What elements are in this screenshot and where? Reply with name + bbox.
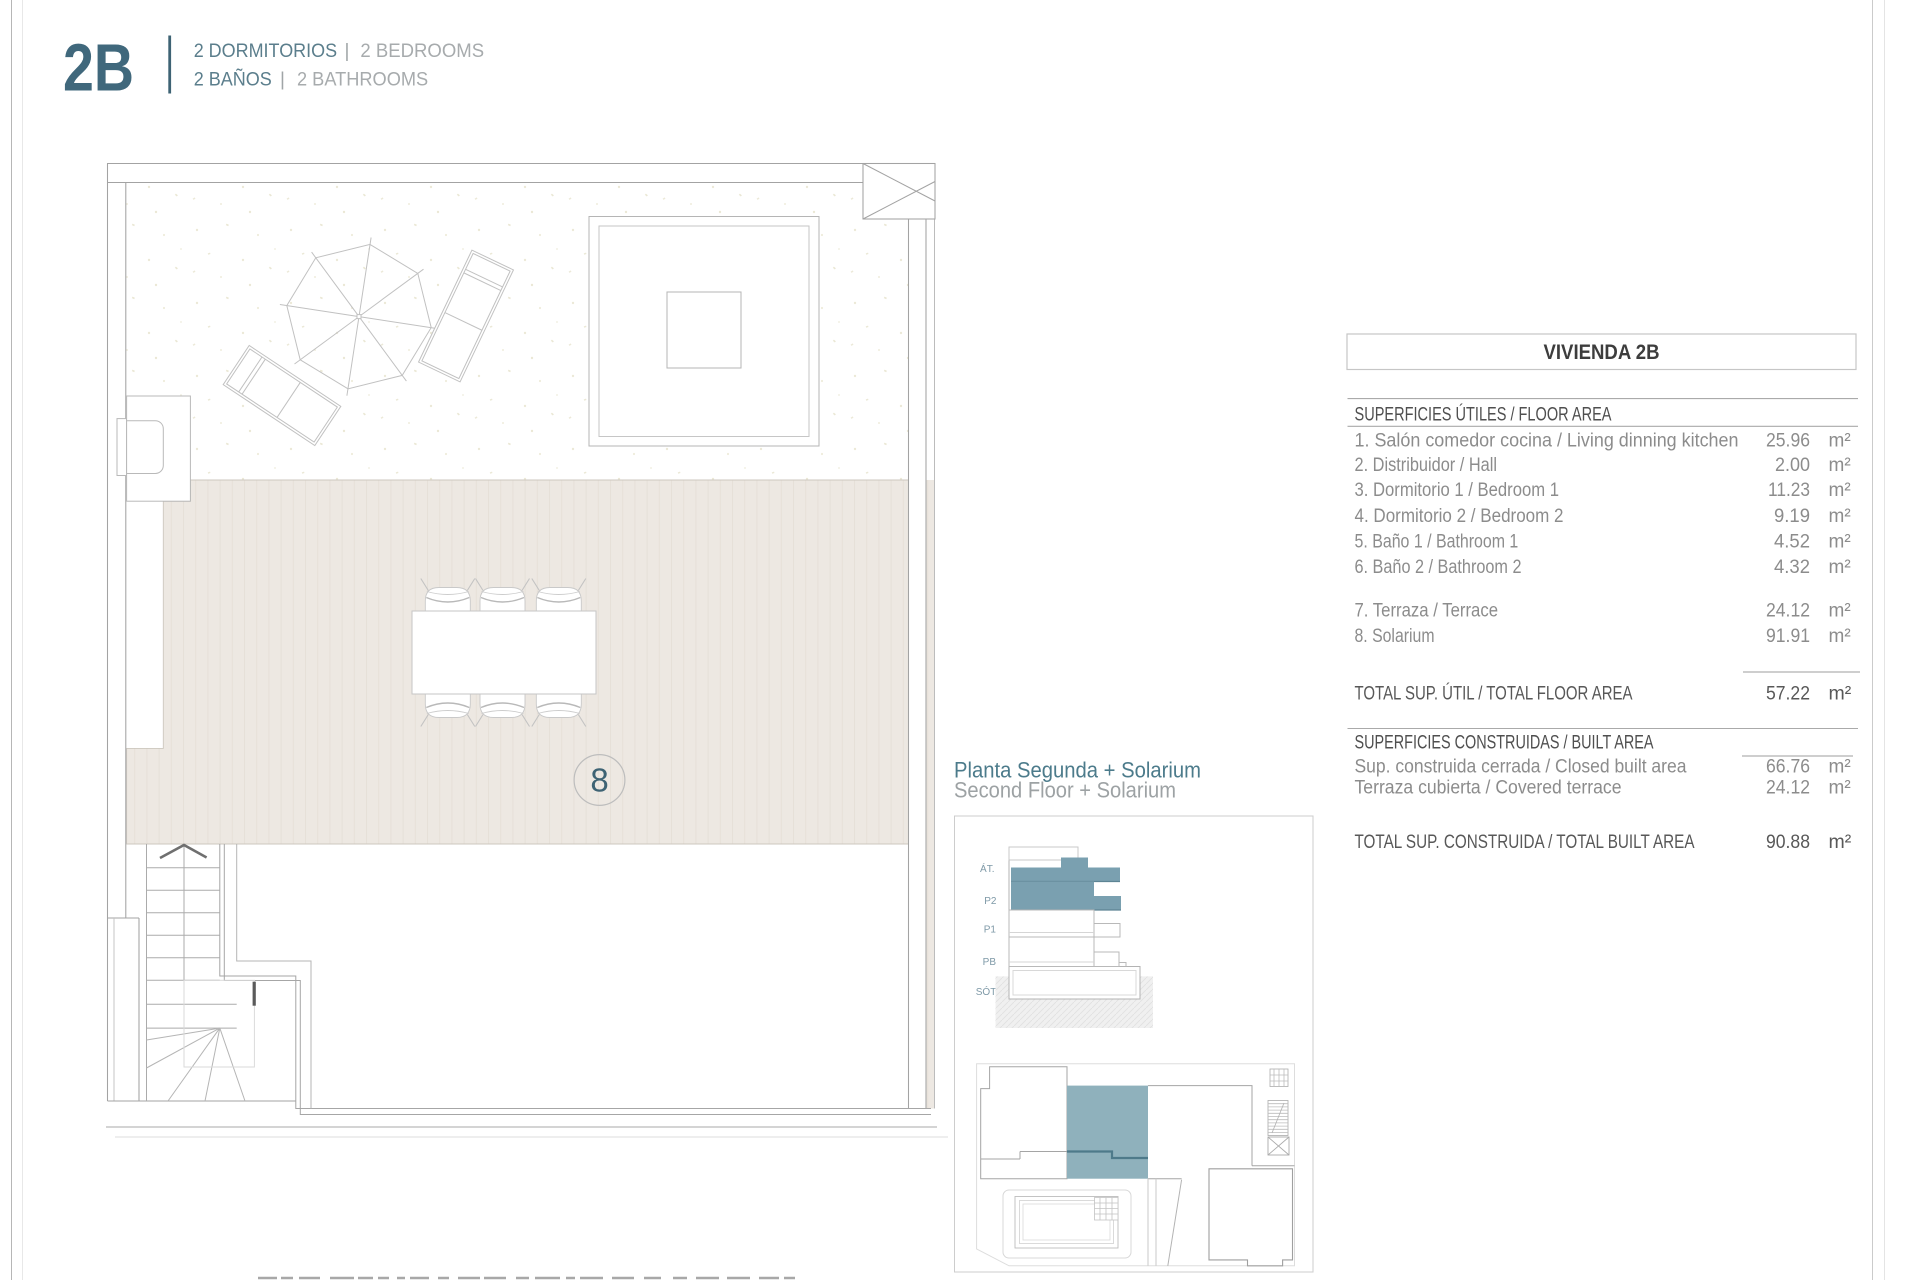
svg-text:TOTAL SUP. ÚTIL / TOTAL FLOOR: TOTAL SUP. ÚTIL / TOTAL FLOOR AREA xyxy=(1355,681,1633,704)
svg-text:m²: m² xyxy=(1829,626,1851,647)
svg-text:90.88: 90.88 xyxy=(1766,831,1810,853)
svg-text:7. Terraza / Terrace: 7. Terraza / Terrace xyxy=(1355,600,1499,621)
svg-text:25.96: 25.96 xyxy=(1766,430,1810,451)
svg-text:ÁT.: ÁT. xyxy=(980,862,994,875)
svg-text:2.00: 2.00 xyxy=(1775,455,1810,476)
svg-text:Second Floor + Solarium: Second Floor + Solarium xyxy=(954,778,1176,803)
svg-text:2 DORMITORIOS: 2 DORMITORIOS xyxy=(194,41,337,62)
svg-text:SUPERFICIES ÚTILES / FLOOR ARE: SUPERFICIES ÚTILES / FLOOR AREA xyxy=(1355,403,1612,426)
svg-text:SUPERFICIES CONSTRUIDAS / BUIL: SUPERFICIES CONSTRUIDAS / BUILT AREA xyxy=(1355,732,1654,754)
svg-text:8. Solarium: 8. Solarium xyxy=(1355,626,1435,647)
svg-text:|: | xyxy=(280,70,285,91)
svg-text:2. Distribuidor / Hall: 2. Distribuidor / Hall xyxy=(1355,455,1498,476)
svg-text:24.12: 24.12 xyxy=(1766,778,1810,799)
svg-text:4. Dormitorio 2 / Bedroom 2: 4. Dormitorio 2 / Bedroom 2 xyxy=(1355,506,1564,527)
svg-text:m²: m² xyxy=(1829,600,1851,621)
svg-text:m²: m² xyxy=(1829,455,1851,476)
svg-text:3. Dormitorio 1 / Bedroom 1: 3. Dormitorio 1 / Bedroom 1 xyxy=(1355,480,1560,501)
svg-text:2B: 2B xyxy=(63,31,134,106)
svg-text:PB: PB xyxy=(983,957,997,968)
svg-text:4.32: 4.32 xyxy=(1774,557,1810,578)
svg-text:m²: m² xyxy=(1829,557,1851,578)
svg-text:m²: m² xyxy=(1829,682,1852,704)
svg-text:m²: m² xyxy=(1829,778,1851,799)
svg-text:|: | xyxy=(345,41,350,62)
svg-text:m²: m² xyxy=(1829,430,1851,451)
svg-text:TOTAL SUP. CONSTRUIDA / TOTAL: TOTAL SUP. CONSTRUIDA / TOTAL BUILT AREA xyxy=(1355,831,1695,853)
svg-text:9.19: 9.19 xyxy=(1774,506,1810,527)
svg-text:m²: m² xyxy=(1829,757,1851,778)
svg-text:P1: P1 xyxy=(984,925,997,936)
svg-text:SÓT.: SÓT. xyxy=(976,985,998,998)
svg-text:57.22: 57.22 xyxy=(1766,682,1810,704)
svg-text:8: 8 xyxy=(590,762,608,799)
svg-text:Sup. construida cerrada / Clos: Sup. construida cerrada / Closed built a… xyxy=(1355,757,1687,778)
svg-text:11.23: 11.23 xyxy=(1768,480,1810,501)
svg-text:2 BAÑOS: 2 BAÑOS xyxy=(194,69,272,91)
svg-text:Terraza cubierta / Covered ter: Terraza cubierta / Covered terrace xyxy=(1355,778,1622,799)
svg-text:2 BEDROOMS: 2 BEDROOMS xyxy=(360,41,484,62)
svg-text:m²: m² xyxy=(1829,532,1851,553)
svg-text:m²: m² xyxy=(1829,831,1852,853)
svg-text:91.91: 91.91 xyxy=(1766,626,1810,647)
svg-text:66.76: 66.76 xyxy=(1766,757,1810,778)
svg-text:24.12: 24.12 xyxy=(1766,600,1810,621)
svg-text:6. Baño 2 / Bathroom 2: 6. Baño 2 / Bathroom 2 xyxy=(1355,557,1522,578)
svg-text:1. Salón comedor cocina / Livi: 1. Salón comedor cocina / Living dinning… xyxy=(1355,430,1739,451)
svg-text:P2: P2 xyxy=(984,896,997,907)
svg-text:m²: m² xyxy=(1829,480,1851,501)
svg-text:4.52: 4.52 xyxy=(1774,532,1810,553)
svg-text:m²: m² xyxy=(1829,506,1851,527)
svg-text:VIVIENDA 2B: VIVIENDA 2B xyxy=(1544,341,1660,364)
svg-text:2 BATHROOMS: 2 BATHROOMS xyxy=(297,70,428,91)
svg-text:5. Baño 1 / Bathroom 1: 5. Baño 1 / Bathroom 1 xyxy=(1355,532,1519,553)
